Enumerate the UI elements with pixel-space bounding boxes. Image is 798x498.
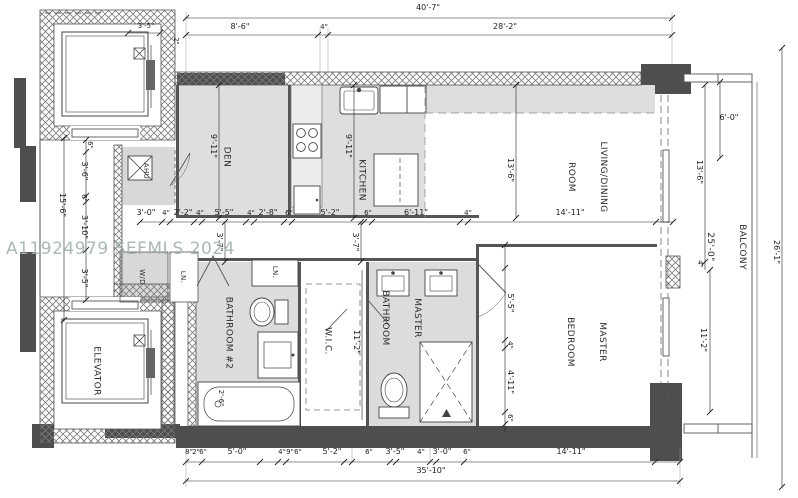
room-label-master-bedroom: MASTER BEDROOM xyxy=(553,317,629,367)
dim-mb-4: 4" xyxy=(506,341,514,349)
dim-left-6b: 6" xyxy=(80,194,88,202)
dim-top-gap: 4" xyxy=(320,23,328,31)
dim-mid-1: 4" xyxy=(162,209,170,217)
room-label-den: DEN xyxy=(221,147,232,168)
dim-bot-12: 6" xyxy=(463,448,471,456)
dim-elevator-width: 3'-5" xyxy=(138,22,155,30)
floor-plan-canvas: 40'-7" 8'-6" 4" 28'-2" 3'-5" 2" 6" 3'-6"… xyxy=(0,0,798,498)
dim-mid-0: 3'-0" xyxy=(137,208,156,218)
dim-mid-7: 6" xyxy=(285,209,293,217)
dim-balcony-13-6: 13'-6" xyxy=(694,160,704,184)
dim-mid-5: 4" xyxy=(247,209,255,217)
dim-tub: 2'-6" xyxy=(217,390,225,407)
dim-overall-width: 40'-7" xyxy=(416,3,440,13)
dim-mid-4: 5'-5" xyxy=(215,208,234,218)
mls-watermark: A11924979 SEFMLS 2024 xyxy=(6,239,235,259)
room-label-bathroom2: BATHROOM #2 xyxy=(223,297,234,370)
dim-left-3-6: 3'-6" xyxy=(79,162,89,181)
dim-bot-6: 6" xyxy=(294,448,302,456)
room-label-kitchen: KITCHEN xyxy=(356,159,367,201)
room-label-balcony: BALCONY 25'-0" xyxy=(693,224,769,270)
room-label-ln1: LN. xyxy=(179,271,187,284)
dim-top-right: 28'-2" xyxy=(493,22,517,32)
dim-mid-6: 2'-8" xyxy=(259,208,278,218)
dim-bot-10: 4" xyxy=(417,448,425,456)
dim-wic-depth: 11'-2" xyxy=(351,330,361,354)
dim-living-depth: 13'-6" xyxy=(505,158,515,182)
dim-balcony-6-0: 6'-0" xyxy=(720,113,739,123)
dim-left-6a: 6" xyxy=(86,141,94,149)
dim-bot-13: 14'-11" xyxy=(556,447,585,457)
dim-left-3-5: 3'-5" xyxy=(79,269,89,288)
dim-hall-3-7b: 3'-7" xyxy=(350,233,360,252)
dim-balcony-11-2: 11'-2" xyxy=(698,328,708,352)
dim-mid-2: 2'-2" xyxy=(174,208,193,218)
dim-elevator-wall: 2" xyxy=(172,37,180,45)
dim-bot-4: 4" xyxy=(278,448,286,456)
dim-mb-6: 6" xyxy=(506,414,514,422)
dim-kitchen-depth: 9'-11" xyxy=(343,134,353,158)
dim-mid-9: 6" xyxy=(364,209,372,217)
dim-mb-5-5: 5'-5" xyxy=(505,294,515,313)
dim-bot-11: 3'-0" xyxy=(433,447,452,457)
dim-bot-8: 6" xyxy=(365,448,373,456)
dim-bot-9: 3'-5" xyxy=(386,447,405,457)
dim-left-3-10: 3'-10" xyxy=(79,215,89,239)
room-label-ahu: AHU xyxy=(142,163,150,179)
dim-mb-4-11: 4'-11" xyxy=(505,370,515,394)
dim-den-depth: 9'-11" xyxy=(208,134,218,158)
dim-bot-3: 5'-0" xyxy=(228,447,247,457)
hatched-walls xyxy=(40,10,680,443)
dim-bottom-overall: 35'-10" xyxy=(416,466,445,476)
room-label-living: LIVING/DINING ROOM xyxy=(554,141,630,212)
dim-mid-11: 4" xyxy=(464,209,472,217)
dim-right-overall: 26'-1" xyxy=(771,240,781,264)
dim-bot-7: 5'-2" xyxy=(323,447,342,457)
room-label-wic: W.I.C. xyxy=(322,327,333,355)
room-label-wd: W/D xyxy=(138,269,146,285)
dim-bot-5: 9" xyxy=(286,448,294,456)
room-label-ln2: LN. xyxy=(271,266,279,279)
dim-mid-10: 6'-11" xyxy=(404,208,428,218)
room-label-elevator: ELEVATOR xyxy=(91,346,102,395)
dim-bot-2: 6" xyxy=(199,448,207,456)
dim-left-overall: 15'-6" xyxy=(57,193,67,217)
dim-mid-3: 4" xyxy=(196,209,204,217)
dim-mid-8: 5'-2" xyxy=(321,208,340,218)
room-label-master-bathroom: MASTER BATHROOM xyxy=(368,290,444,345)
dim-top-left: 8'-6" xyxy=(231,22,250,32)
